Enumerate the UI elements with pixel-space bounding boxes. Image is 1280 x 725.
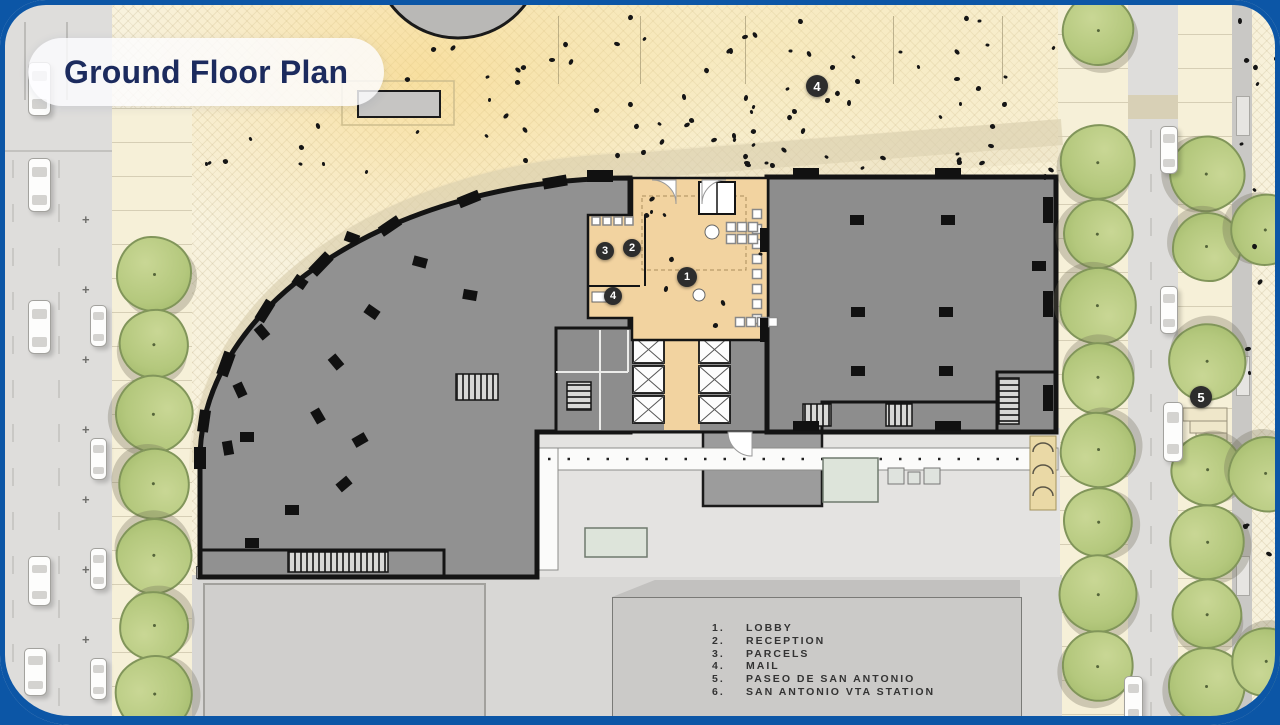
person-mark xyxy=(364,169,368,174)
legend-item-number: 1. xyxy=(712,622,746,635)
person-mark xyxy=(522,157,528,163)
legend-item: 1.LOBBY xyxy=(712,622,935,635)
person-mark xyxy=(798,18,804,24)
person-mark xyxy=(985,43,990,47)
person-mark xyxy=(743,95,749,102)
person-mark xyxy=(750,128,757,135)
person-mark xyxy=(316,123,321,130)
person-mark xyxy=(955,152,959,156)
person-mark xyxy=(751,142,756,147)
person-mark xyxy=(742,153,749,160)
person-mark xyxy=(681,94,686,100)
person-mark xyxy=(298,161,303,166)
marker-paseo: 5 xyxy=(1190,386,1212,408)
marker-parcels-number: 3 xyxy=(602,245,608,257)
person-mark xyxy=(514,79,521,86)
person-mark xyxy=(1251,243,1258,250)
person-mark xyxy=(449,44,456,51)
legend-item-number: 3. xyxy=(712,648,746,661)
person-mark xyxy=(627,101,633,107)
legend-item-label: PASEO DE SAN ANTONIO xyxy=(746,673,915,686)
ground-floor-plan: 1 2 3 4 4 5 Ground Floor Plan 1.LOBBY 2.… xyxy=(0,0,1280,725)
person-mark xyxy=(549,58,555,63)
person-mark xyxy=(668,256,675,263)
person-mark xyxy=(1255,82,1260,87)
person-mark xyxy=(780,147,787,154)
person-mark xyxy=(898,50,903,54)
person-mark xyxy=(249,137,253,142)
marker-mail: 4 xyxy=(604,287,622,305)
person-mark xyxy=(711,138,718,143)
legend: 1.LOBBY 2.RECEPTION 3.PARCELS 4.MAIL 5.P… xyxy=(712,622,935,699)
person-mark xyxy=(988,143,995,149)
person-mark xyxy=(614,152,621,159)
person-mark xyxy=(403,76,410,83)
person-mark xyxy=(789,50,793,53)
people-layer xyxy=(0,0,1280,725)
person-mark xyxy=(703,67,710,74)
person-mark xyxy=(1001,102,1007,108)
legend-item: 3.PARCELS xyxy=(712,648,935,661)
person-mark xyxy=(954,77,960,81)
person-mark xyxy=(502,112,509,119)
legend-item: 2.RECEPTION xyxy=(712,635,935,648)
person-mark xyxy=(720,299,726,306)
person-mark xyxy=(750,109,754,114)
person-mark xyxy=(977,19,981,22)
marker-parcels: 3 xyxy=(596,242,614,260)
person-mark xyxy=(1042,174,1047,181)
person-mark xyxy=(633,123,640,130)
person-mark xyxy=(521,64,528,71)
plan-title-pill: Ground Floor Plan xyxy=(28,38,384,106)
person-mark xyxy=(806,51,812,58)
person-mark xyxy=(649,209,653,214)
person-mark xyxy=(1047,167,1054,174)
person-mark xyxy=(824,154,829,159)
person-mark xyxy=(568,58,575,65)
person-mark xyxy=(299,145,305,151)
person-mark xyxy=(628,15,634,21)
person-mark xyxy=(975,85,981,91)
person-mark xyxy=(662,213,666,218)
person-mark xyxy=(657,121,662,126)
person-mark xyxy=(613,41,620,47)
person-mark xyxy=(770,162,775,167)
person-mark xyxy=(855,79,860,84)
person-mark xyxy=(792,109,797,114)
person-mark xyxy=(663,286,669,293)
legend-item-number: 4. xyxy=(712,660,746,673)
person-mark xyxy=(764,162,768,165)
person-mark xyxy=(825,98,830,103)
marker-lobby: 1 xyxy=(677,267,697,287)
person-mark xyxy=(1256,279,1263,286)
person-mark xyxy=(829,65,835,71)
person-mark xyxy=(957,160,962,165)
person-mark xyxy=(953,48,960,55)
legend-item-number: 2. xyxy=(712,635,746,648)
marker-plaza: 4 xyxy=(806,75,828,97)
person-mark xyxy=(1051,46,1056,51)
person-mark xyxy=(593,107,600,114)
person-mark xyxy=(640,150,646,156)
person-mark xyxy=(1252,187,1257,192)
person-mark xyxy=(741,34,748,39)
marker-paseo-number: 5 xyxy=(1197,390,1204,405)
person-mark xyxy=(1003,75,1008,79)
person-mark xyxy=(1248,371,1251,375)
legend-item-label: LOBBY xyxy=(746,622,793,635)
person-mark xyxy=(959,102,962,106)
person-mark xyxy=(846,99,851,105)
person-mark xyxy=(487,98,491,102)
person-mark xyxy=(1239,142,1244,146)
marker-reception-number: 2 xyxy=(629,242,635,254)
person-mark xyxy=(879,155,886,161)
person-mark xyxy=(689,117,695,123)
legend-item-label: SAN ANTONIO VTA STATION xyxy=(746,686,935,699)
person-mark xyxy=(484,134,489,139)
person-mark xyxy=(1252,64,1259,71)
plan-canvas: 1 2 3 4 4 5 Ground Floor Plan 1.LOBBY 2.… xyxy=(0,0,1280,725)
person-mark xyxy=(732,133,736,139)
legend-item-label: PARCELS xyxy=(746,648,809,661)
person-mark xyxy=(712,322,718,328)
person-mark xyxy=(649,196,656,203)
marker-mail-number: 4 xyxy=(610,290,616,302)
person-mark xyxy=(851,55,856,60)
person-mark xyxy=(729,48,733,54)
person-mark xyxy=(786,114,793,121)
legend-item: 4.MAIL xyxy=(712,660,935,673)
marker-lobby-number: 1 xyxy=(684,271,690,283)
legend-item-label: MAIL xyxy=(746,660,780,673)
person-mark xyxy=(989,123,996,130)
person-mark xyxy=(1243,57,1250,64)
person-mark xyxy=(938,114,943,119)
person-mark xyxy=(562,41,569,48)
page-title: Ground Floor Plan xyxy=(64,54,348,91)
marker-plaza-number: 4 xyxy=(813,79,820,94)
person-mark xyxy=(752,32,758,39)
legend-item-number: 6. xyxy=(712,686,746,699)
person-mark xyxy=(752,105,756,110)
marker-reception: 2 xyxy=(623,239,641,257)
person-mark xyxy=(522,126,529,133)
legend-item: 6.SAN ANTONIO VTA STATION xyxy=(712,686,935,699)
person-mark xyxy=(916,64,920,69)
person-mark xyxy=(1265,551,1272,558)
person-mark xyxy=(1274,56,1279,61)
person-mark xyxy=(222,158,229,165)
person-mark xyxy=(979,160,986,166)
person-mark xyxy=(1244,347,1250,352)
person-mark xyxy=(642,37,647,42)
person-mark xyxy=(658,139,665,146)
person-mark xyxy=(322,162,325,166)
person-mark xyxy=(1238,18,1243,24)
legend-item-number: 5. xyxy=(712,673,746,686)
person-mark xyxy=(785,87,790,91)
person-mark xyxy=(207,160,212,165)
person-mark xyxy=(431,46,438,53)
person-mark xyxy=(834,90,841,97)
person-mark xyxy=(799,127,805,134)
legend-item: 5.PASEO DE SAN ANTONIO xyxy=(712,673,935,686)
person-mark xyxy=(963,15,970,22)
person-mark xyxy=(415,130,420,135)
legend-item-label: RECEPTION xyxy=(746,635,825,648)
person-mark xyxy=(860,166,865,170)
person-mark xyxy=(758,252,763,256)
person-mark xyxy=(485,75,490,79)
